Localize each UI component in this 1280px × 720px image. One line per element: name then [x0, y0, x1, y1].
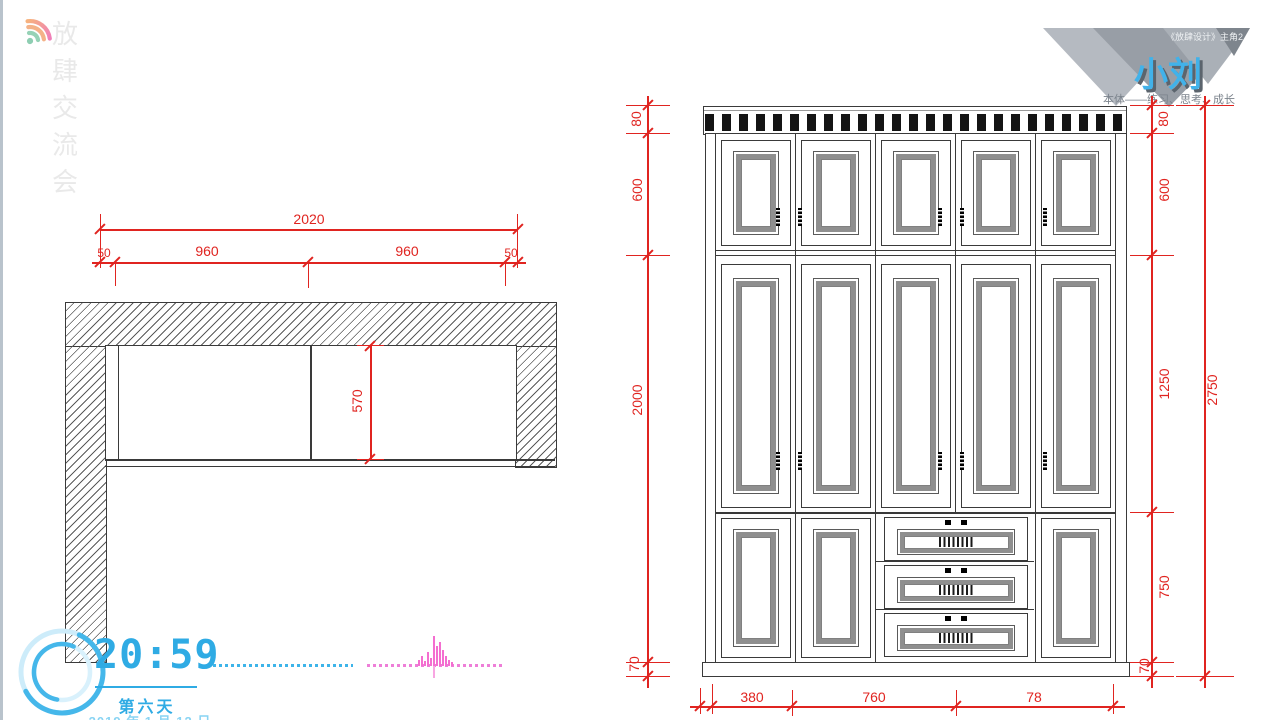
dotted-line-blue — [213, 664, 353, 667]
plan-dim-left-section: 960 — [195, 243, 218, 259]
drawing-line — [876, 561, 1034, 562]
drawing-line — [876, 609, 1034, 610]
drawing-line — [715, 250, 1115, 251]
base-plinth — [702, 662, 1130, 677]
drawing-line — [715, 255, 1115, 256]
wardrobe-door — [801, 140, 871, 246]
dimension-line — [115, 262, 116, 286]
wardrobe-door — [721, 140, 791, 246]
door-panel-frame — [733, 278, 779, 494]
door-handle — [938, 208, 942, 226]
elev-dim-right-middle: 1250 — [1156, 368, 1172, 399]
waveform-bar — [424, 661, 426, 666]
drawing-line — [875, 133, 876, 662]
waveform-bar — [433, 636, 435, 666]
wardrobe-door — [721, 518, 791, 658]
door-panel-center — [981, 286, 1011, 486]
wardrobe-door — [721, 264, 791, 508]
drawer-handle — [945, 616, 967, 621]
door-handle — [960, 208, 964, 226]
dimension-line — [308, 262, 309, 288]
wardrobe-door — [961, 264, 1031, 508]
door-panel-frame — [973, 278, 1019, 494]
door-panel-frame — [813, 278, 859, 494]
drawing-line — [105, 466, 555, 467]
door-handle — [776, 208, 780, 226]
elev-dim-left-upper: 600 — [629, 178, 645, 201]
wall-top — [65, 302, 557, 347]
badge-slogan: 本体——练习、思考、成长 — [1103, 92, 1235, 106]
dimension-line — [370, 346, 372, 460]
drawing-line — [715, 133, 716, 662]
door-panel-bevel — [736, 281, 776, 491]
drawer-panel-center — [904, 536, 1009, 549]
waveform-bar — [421, 656, 423, 666]
waveform-bar — [436, 646, 438, 666]
door-panel-bevel — [816, 154, 856, 232]
elev-dim-right-upper: 600 — [1156, 178, 1172, 201]
badge-series-label: 《放肆设计》主角2 — [1166, 31, 1243, 42]
clock-time: 20:59 — [94, 632, 219, 678]
door-panel-center — [1061, 537, 1091, 639]
drawing-line — [1115, 133, 1116, 662]
elev-dim-left-crown: 80 — [628, 111, 644, 127]
door-panel-bevel — [736, 154, 776, 232]
plan-dim-depth: 570 — [349, 389, 365, 412]
door-handle — [776, 452, 780, 470]
elev-dim-bottom-seg3: 78 — [1026, 689, 1042, 705]
badge-presenter-name: 小刘 — [1134, 56, 1202, 94]
waveform-bar — [439, 642, 441, 666]
drawer-panel-center — [904, 584, 1009, 597]
crown-line — [704, 110, 1126, 111]
drawer-panel-frame — [897, 625, 1015, 651]
door-panel-bevel — [816, 281, 856, 491]
elev-dim-bottom-seg2: 760 — [862, 689, 885, 705]
wall-left — [65, 345, 107, 663]
door-panel-frame — [1053, 151, 1099, 235]
elev-dim-right-crown: 80 — [1155, 111, 1171, 127]
door-panel-bevel — [1056, 154, 1096, 232]
door-panel-center — [901, 286, 931, 486]
drawing-line — [118, 345, 119, 459]
door-panel-frame — [1053, 278, 1099, 494]
dimension-line — [1204, 96, 1206, 688]
door-panel-frame — [733, 529, 779, 647]
waveform-bar — [451, 662, 453, 666]
door-panel-bevel — [736, 532, 776, 644]
door-panel-frame — [733, 151, 779, 235]
dimension-line — [712, 684, 713, 714]
door-handle — [798, 208, 802, 226]
door-panel-bevel — [1056, 281, 1096, 491]
elev-dim-total-height: 2750 — [1204, 374, 1220, 405]
door-panel-frame — [893, 278, 939, 494]
door-panel-center — [821, 537, 851, 639]
crown-molding — [703, 106, 1127, 135]
wardrobe-door — [881, 140, 951, 246]
clock-date-label: 2019 年 1 月 12 日 — [89, 711, 212, 720]
door-panel-center — [981, 159, 1011, 227]
wardrobe-door — [1041, 140, 1111, 246]
door-panel-frame — [813, 529, 859, 647]
drawer-face — [884, 613, 1028, 657]
drawer-panel-center — [904, 632, 1009, 645]
drawing-line — [105, 459, 555, 461]
screen-edge-strip — [0, 0, 3, 720]
door-panel-bevel — [896, 154, 936, 232]
elev-dim-right-lower: 750 — [1156, 575, 1172, 598]
door-handle — [938, 452, 942, 470]
clock-underline — [95, 686, 197, 688]
dimension-line — [1113, 684, 1114, 714]
dentil-band — [705, 114, 1125, 131]
wardrobe-door — [1041, 518, 1111, 658]
door-panel-frame — [893, 151, 939, 235]
door-panel-center — [741, 286, 771, 486]
wardrobe-door — [801, 264, 871, 508]
waveform-bar — [448, 660, 450, 666]
drawer-face — [884, 517, 1028, 561]
drawer-panel-bevel — [900, 628, 1013, 649]
drawing-line — [715, 512, 1115, 514]
door-panel-frame — [1053, 529, 1099, 647]
waveform-bar — [433, 666, 435, 678]
door-panel-center — [821, 286, 851, 486]
elev-dim-left-body: 2000 — [629, 384, 645, 415]
dimension-line — [1151, 96, 1153, 688]
drawing-line — [795, 133, 796, 662]
door-handle — [1043, 208, 1047, 226]
drawing-line — [310, 345, 312, 459]
elev-dim-bottom-seg1: 380 — [740, 689, 763, 705]
elev-dim-left-base: 70 — [626, 656, 642, 672]
waveform-bar — [445, 656, 447, 666]
wall-right — [515, 345, 557, 468]
door-panel-center — [741, 537, 771, 639]
door-panel-frame — [973, 151, 1019, 235]
drawer-panel-bevel — [900, 532, 1013, 553]
door-handle — [1043, 452, 1047, 470]
plan-dim-total-width: 2020 — [293, 211, 324, 227]
drawer-handle — [945, 520, 967, 525]
drawer-lock-detail — [939, 633, 973, 643]
drawer-panel-bevel — [900, 580, 1013, 601]
waveform-bar — [418, 660, 420, 666]
door-panel-bevel — [816, 532, 856, 644]
door-handle — [798, 452, 802, 470]
door-panel-bevel — [896, 281, 936, 491]
door-panel-bevel — [976, 281, 1016, 491]
drawer-handle — [945, 568, 967, 573]
screenshot-stage: 放肆交流会 《放肆设计》主角2 小刘 小刘 本体——练习、思考、成长 2020 … — [0, 0, 1280, 720]
door-panel-bevel — [1056, 532, 1096, 644]
wardrobe-door — [881, 264, 951, 508]
waveform-bar — [430, 658, 432, 666]
door-panel-center — [901, 159, 931, 227]
dimension-line — [690, 706, 1125, 708]
drawer-panel-frame — [897, 577, 1015, 603]
drawing-line — [955, 133, 956, 512]
waveform-bar — [427, 652, 429, 666]
watermark-brand-text: 放肆交流会 — [52, 14, 82, 199]
dimension-line — [100, 229, 518, 231]
door-panel-frame — [813, 151, 859, 235]
dimension-line — [505, 262, 506, 286]
drawer-panel-frame — [897, 529, 1015, 555]
drawer-lock-detail — [939, 585, 973, 595]
door-panel-center — [821, 159, 851, 227]
door-panel-center — [1061, 159, 1091, 227]
presenter-badge: 《放肆设计》主角2 小刘 小刘 本体——练习、思考、成长 — [1038, 26, 1254, 112]
dimension-line — [647, 96, 649, 688]
door-panel-bevel — [976, 154, 1016, 232]
wardrobe-door — [801, 518, 871, 658]
wardrobe-door — [1041, 264, 1111, 508]
door-handle — [960, 452, 964, 470]
wardrobe-door — [961, 140, 1031, 246]
door-panel-center — [741, 159, 771, 227]
drawing-line — [1035, 133, 1036, 662]
dimension-line — [700, 688, 701, 714]
plan-dim-right-section: 960 — [395, 243, 418, 259]
drawer-lock-detail — [939, 537, 973, 547]
door-panel-center — [1061, 286, 1091, 486]
waveform-bar — [442, 650, 444, 666]
drawer-face — [884, 565, 1028, 609]
